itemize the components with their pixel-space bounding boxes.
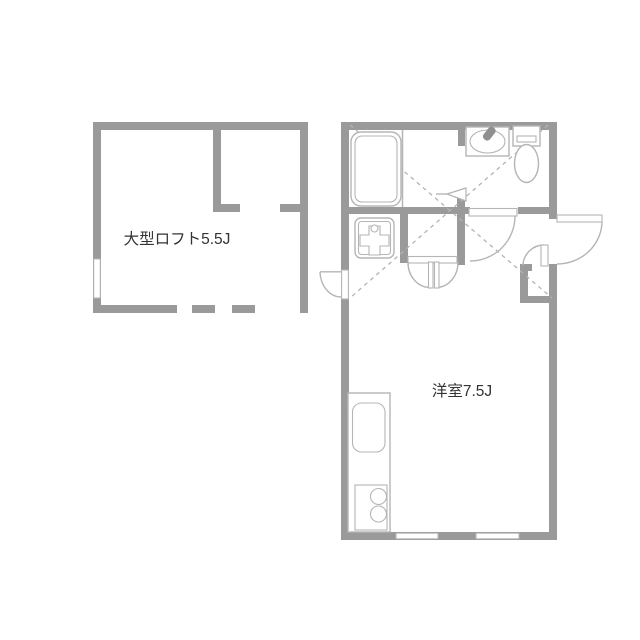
loft-room-label: 大型ロフト5.5J xyxy=(124,230,231,248)
west-door-arc-icon xyxy=(320,272,342,297)
main-room-label: 洋室7.5J xyxy=(432,382,492,400)
washing-machine-pan xyxy=(355,218,394,258)
unit-wall-right-lower xyxy=(549,264,557,540)
entrance-door-leaf xyxy=(557,215,602,222)
toilet-icon xyxy=(515,145,539,183)
closet-wall-right xyxy=(457,193,465,265)
west-door xyxy=(320,270,348,299)
closet-door-arc-left-icon xyxy=(408,262,429,288)
floor-plan-canvas: 大型ロフト5.5J xyxy=(0,0,640,640)
floor-plan-page: 大型ロフト5.5J xyxy=(0,0,640,640)
closet-door-arc-right-icon xyxy=(438,262,458,288)
west-door-leaf xyxy=(342,270,349,299)
loft-wall-top xyxy=(93,122,308,130)
toilet-tank-detail xyxy=(517,136,536,142)
alcove-door-leaf xyxy=(541,245,548,266)
closet-door-leaf-right xyxy=(435,262,440,288)
closet-double-door xyxy=(408,257,458,289)
unit-wall-bottom xyxy=(341,532,557,540)
loft-room: 大型ロフト5.5J xyxy=(93,122,308,313)
unit-wall-right-upper xyxy=(549,122,557,219)
hall-wall-right-segment xyxy=(518,207,557,214)
loft-wall-right xyxy=(300,122,308,313)
closet-door-leaf-left xyxy=(429,262,434,288)
alcove-door xyxy=(523,245,548,266)
window-marker-bottom-left xyxy=(396,533,438,539)
window-marker-bottom-right xyxy=(476,533,519,539)
entrance-door-arc-icon xyxy=(557,222,602,264)
washing-pan-drain-icon xyxy=(371,225,378,232)
loft-wall-bottom-b xyxy=(192,305,215,313)
ladder-arrow-icon xyxy=(447,188,466,201)
loft-wall-bottom-a xyxy=(93,305,177,313)
bathtub-inner-line xyxy=(355,136,397,202)
loft-wall-bottom-c xyxy=(232,305,255,313)
washroom-door xyxy=(469,209,517,262)
kitchen xyxy=(348,393,390,532)
loft-partition-stub-right xyxy=(280,204,308,212)
loft-partition-stub-left xyxy=(213,204,240,212)
stove-burner-icon-2 xyxy=(371,506,387,522)
stove-burner-icon-1 xyxy=(371,489,387,505)
washroom-door-arc-icon xyxy=(470,216,515,261)
washroom-wall-stub xyxy=(458,130,465,146)
washroom-door-leaf xyxy=(469,209,517,217)
kitchen-sink-icon xyxy=(353,403,386,452)
entrance-door xyxy=(557,215,602,264)
bathtub xyxy=(351,132,401,206)
loft-window-marker xyxy=(94,259,101,298)
loft-partition-wall xyxy=(213,122,221,208)
alcove-wall-top-stub xyxy=(520,264,532,271)
washbasin xyxy=(466,125,509,156)
unit-wall-left-upper xyxy=(341,122,349,270)
toilet xyxy=(513,126,540,183)
closet-wall-left xyxy=(400,213,408,263)
